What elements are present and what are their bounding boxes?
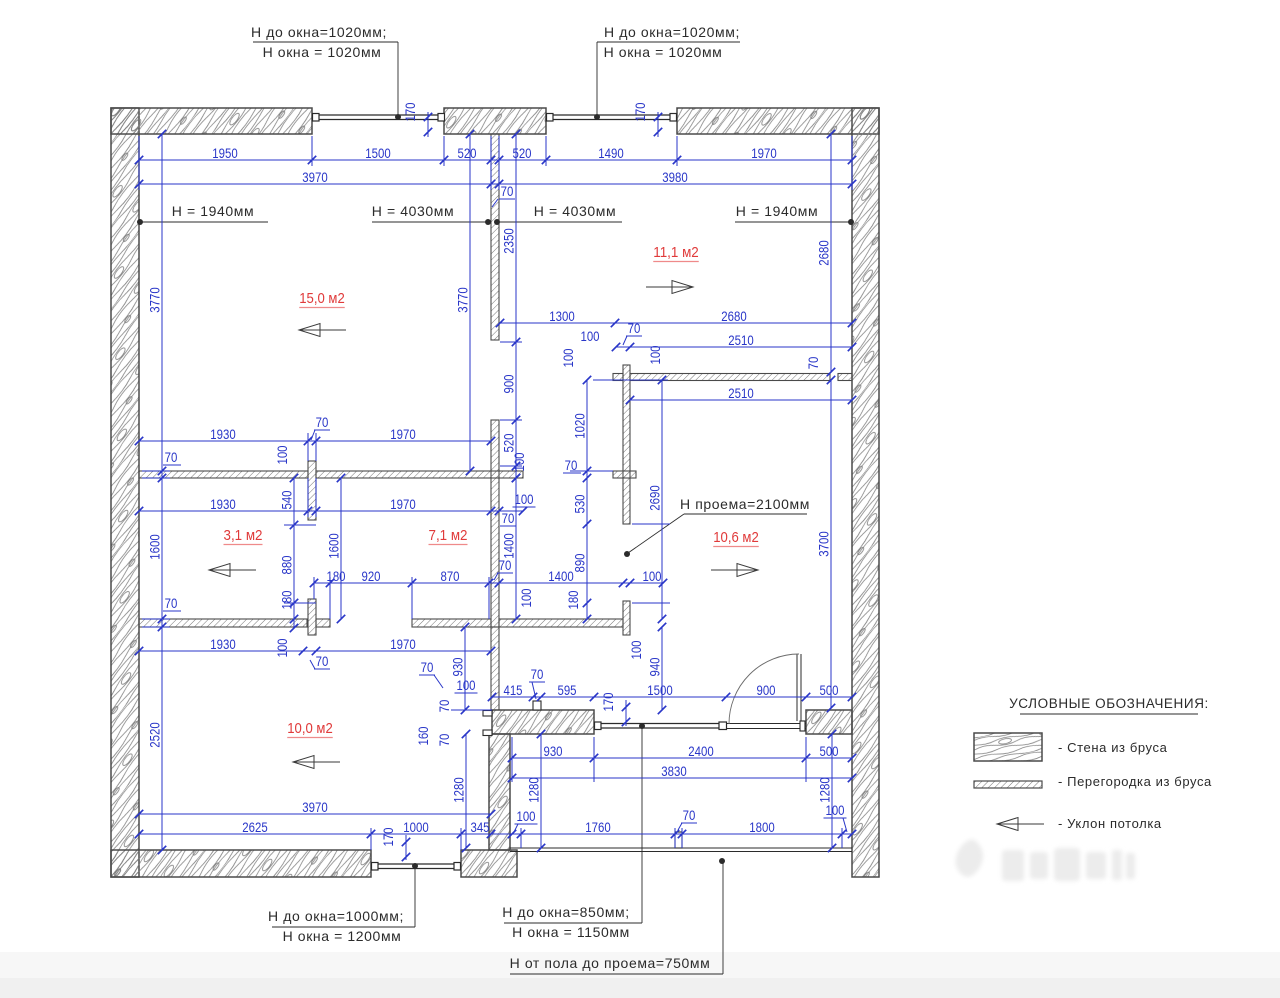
svg-text:Н до окна=850мм;: Н до окна=850мм;: [502, 904, 630, 920]
svg-text:Н окна = 1020мм: Н окна = 1020мм: [604, 44, 723, 60]
svg-text:70: 70: [436, 699, 452, 712]
svg-text:940: 940: [647, 657, 663, 676]
svg-text:3700: 3700: [816, 531, 832, 557]
svg-text:3770: 3770: [147, 287, 163, 313]
svg-text:70: 70: [316, 653, 329, 669]
svg-text:1930: 1930: [210, 496, 236, 512]
svg-text:70: 70: [502, 510, 515, 526]
svg-text:2680: 2680: [721, 308, 747, 324]
svg-text:1600: 1600: [326, 533, 342, 559]
svg-text:70: 70: [436, 733, 452, 746]
svg-text:Н = 1940мм: Н = 1940мм: [736, 203, 818, 219]
svg-text:1800: 1800: [749, 819, 775, 835]
svg-text:1280: 1280: [817, 777, 833, 803]
svg-text:70: 70: [421, 659, 434, 675]
svg-text:100: 100: [628, 640, 644, 659]
svg-text:1970: 1970: [390, 636, 416, 652]
svg-text:1600: 1600: [147, 534, 163, 560]
svg-text:180: 180: [279, 590, 295, 609]
svg-text:100: 100: [643, 568, 662, 584]
svg-text:Н окна = 1200мм: Н окна = 1200мм: [283, 928, 402, 944]
svg-text:2520: 2520: [147, 722, 163, 748]
svg-text:10,6 м2: 10,6 м2: [713, 529, 759, 546]
svg-text:595: 595: [558, 682, 577, 698]
svg-text:100: 100: [581, 328, 600, 344]
svg-text:Н окна = 1020мм: Н окна = 1020мм: [263, 44, 382, 60]
svg-text:1970: 1970: [390, 426, 416, 442]
svg-text:920: 920: [362, 568, 381, 584]
svg-text:100: 100: [515, 491, 534, 507]
svg-text:70: 70: [628, 320, 641, 336]
svg-text:3970: 3970: [302, 799, 328, 815]
svg-text:Н до окна=1020мм;: Н до окна=1020мм;: [604, 24, 740, 40]
svg-text:1400: 1400: [548, 568, 574, 584]
svg-text:Н = 1940мм: Н = 1940мм: [172, 203, 254, 219]
svg-text:- Уклон потолка: - Уклон потолка: [1058, 816, 1162, 831]
svg-text:1280: 1280: [526, 777, 542, 803]
svg-text:Н до окна=1020мм;: Н до окна=1020мм;: [251, 24, 387, 40]
svg-text:500: 500: [820, 743, 839, 759]
svg-text:1930: 1930: [210, 636, 236, 652]
svg-text:3970: 3970: [302, 169, 328, 185]
svg-text:7,1 м2: 7,1 м2: [429, 527, 468, 544]
svg-text:880: 880: [279, 555, 295, 574]
svg-text:1490: 1490: [598, 145, 624, 161]
svg-text:1400: 1400: [501, 533, 517, 559]
svg-text:1970: 1970: [390, 496, 416, 512]
svg-text:170: 170: [380, 827, 396, 846]
svg-text:1500: 1500: [647, 682, 673, 698]
svg-text:Н проема=2100мм: Н проема=2100мм: [680, 496, 810, 512]
svg-text:10,0 м2: 10,0 м2: [287, 720, 333, 737]
svg-text:100: 100: [274, 445, 290, 464]
svg-text:930: 930: [450, 657, 466, 676]
svg-text:520: 520: [501, 433, 517, 452]
svg-text:1930: 1930: [210, 426, 236, 442]
svg-text:100: 100: [647, 345, 663, 364]
svg-text:Н от пола до проема=750мм: Н от пола до проема=750мм: [510, 955, 711, 971]
svg-text:70: 70: [805, 356, 821, 369]
svg-text:890: 890: [572, 553, 588, 572]
svg-text:1760: 1760: [585, 819, 611, 835]
svg-text:100: 100: [518, 588, 534, 607]
svg-text:15,0 м2: 15,0 м2: [299, 290, 345, 307]
svg-text:- Перегородка из бруса: - Перегородка из бруса: [1058, 774, 1212, 789]
svg-text:70: 70: [165, 595, 178, 611]
svg-text:180: 180: [565, 590, 581, 609]
svg-text:520: 520: [513, 145, 532, 161]
svg-text:3830: 3830: [661, 763, 687, 779]
svg-text:1500: 1500: [365, 145, 391, 161]
svg-text:100: 100: [274, 638, 290, 657]
svg-text:2625: 2625: [242, 819, 268, 835]
svg-text:500: 500: [820, 682, 839, 698]
svg-text:100: 100: [560, 348, 576, 367]
svg-text:415: 415: [504, 682, 523, 698]
svg-text:100: 100: [826, 802, 845, 818]
svg-text:900: 900: [757, 682, 776, 698]
svg-text:180: 180: [327, 568, 346, 584]
svg-text:170: 170: [600, 692, 616, 711]
svg-text:345: 345: [471, 819, 490, 835]
svg-text:70: 70: [501, 183, 514, 199]
svg-text:70: 70: [683, 807, 696, 823]
svg-text:870: 870: [441, 568, 460, 584]
svg-text:2680: 2680: [816, 240, 832, 266]
svg-text:100: 100: [457, 677, 476, 693]
svg-text:Н до окна=1000мм;: Н до окна=1000мм;: [268, 908, 404, 924]
svg-text:2510: 2510: [728, 332, 754, 348]
svg-text:70: 70: [316, 414, 329, 430]
svg-text:170: 170: [402, 102, 418, 121]
svg-text:2350: 2350: [501, 228, 517, 254]
svg-text:2400: 2400: [688, 743, 714, 759]
svg-text:100: 100: [511, 452, 527, 471]
svg-text:70: 70: [165, 449, 178, 465]
svg-text:1950: 1950: [212, 145, 238, 161]
svg-text:1000: 1000: [403, 819, 429, 835]
svg-text:930: 930: [544, 743, 563, 759]
svg-text:1280: 1280: [451, 777, 467, 803]
svg-text:1020: 1020: [572, 413, 588, 439]
svg-text:540: 540: [279, 490, 295, 509]
svg-text:3,1 м2: 3,1 м2: [224, 527, 263, 544]
svg-text:900: 900: [501, 374, 517, 393]
svg-text:530: 530: [572, 494, 588, 513]
svg-text:170: 170: [632, 102, 648, 121]
svg-text:2510: 2510: [728, 385, 754, 401]
svg-text:Н = 4030мм: Н = 4030мм: [372, 203, 454, 219]
svg-text:3770: 3770: [455, 287, 471, 313]
svg-text:160: 160: [415, 726, 431, 745]
svg-text:- Стена из бруса: - Стена из бруса: [1058, 740, 1168, 755]
svg-text:УСЛОВНЫЕ ОБОЗНАЧЕНИЯ:: УСЛОВНЫЕ ОБОЗНАЧЕНИЯ:: [1009, 696, 1209, 711]
svg-text:520: 520: [458, 145, 477, 161]
svg-text:11,1 м2: 11,1 м2: [653, 244, 699, 261]
svg-text:100: 100: [517, 808, 536, 824]
svg-text:Н = 4030мм: Н = 4030мм: [534, 203, 616, 219]
svg-text:1970: 1970: [751, 145, 777, 161]
svg-text:1300: 1300: [549, 308, 575, 324]
svg-text:Н окна = 1150мм: Н окна = 1150мм: [512, 924, 630, 940]
svg-text:70: 70: [531, 666, 544, 682]
svg-text:2690: 2690: [647, 485, 663, 511]
svg-text:3980: 3980: [662, 169, 688, 185]
